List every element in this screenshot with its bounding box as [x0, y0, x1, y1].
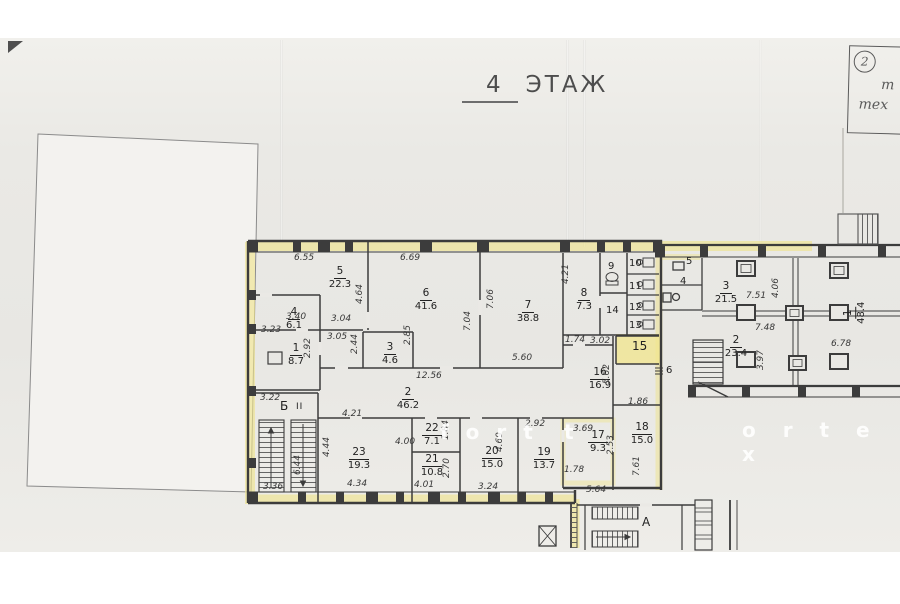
stamp-line2: тех [858, 96, 888, 113]
room-label-7: 738.8 [510, 294, 546, 324]
dim-label: 2.85 [403, 325, 413, 345]
dim-label: 4.34 [347, 479, 367, 489]
dim-label: 3.04 [331, 314, 351, 324]
dim-label: 4.44 [322, 437, 332, 457]
stamp-line1: т [881, 77, 895, 93]
dim-label: 1.78 [564, 465, 584, 475]
dim-label: 1.74 [565, 335, 585, 345]
room-label-9: 9 [608, 261, 614, 272]
stair-label-b: Б [280, 399, 288, 413]
scanned-floor-plan: 4ЭТАЖ 2 т тех 522.3 641.6 738.8 46.1 18.… [0, 0, 900, 604]
room-label-11: 11 [629, 281, 642, 292]
room-label-16: 1616.9 [582, 361, 618, 391]
dim-label: 5.60 [512, 353, 532, 363]
dim-label: 4.01 [414, 480, 434, 490]
dim-label: 7.06 [486, 289, 496, 309]
room-label-13: 13 [629, 320, 642, 331]
corner-stamp: 2 т тех [847, 45, 900, 135]
dim-label: 6.55 [294, 253, 314, 263]
wing-room-label-4: 4 [680, 276, 686, 287]
wing-room-label-3: 321.5 [708, 275, 744, 305]
plan-drawing [0, 0, 900, 604]
room-label-10: 10 [629, 258, 642, 269]
room-label-12: 12 [629, 302, 642, 313]
stamp-number: 2 [853, 50, 876, 73]
dim-label: 1.86 [628, 397, 648, 407]
dim-label: 3.22 [260, 393, 280, 403]
dim-label: 2.70 [442, 458, 452, 478]
room-label-18: 1815.0 [624, 416, 660, 446]
dim-label: 2.92 [303, 338, 313, 358]
room-label-6: 641.6 [408, 282, 444, 312]
dim-label: 7.61 [632, 456, 642, 476]
floor-number: 4 [462, 72, 518, 103]
dim-label: 3.69 [573, 424, 593, 434]
floor-word: ЭТАЖ [526, 72, 609, 98]
watermark-text: f o r t [440, 420, 538, 444]
wing-room-label-2: 223.4 [718, 329, 754, 359]
room-label-8: 87.3 [566, 282, 602, 312]
dim-label: 4.00 [395, 437, 415, 447]
dim-label: 6.69 [400, 253, 420, 263]
room-label-5: 522.3 [322, 260, 358, 290]
dim-label: 7.48 [755, 323, 775, 333]
photo-corner-mark [8, 41, 23, 53]
dim-label: 3.97 [756, 350, 766, 370]
dim-label: 7.51 [746, 291, 766, 301]
watermark-text: o r t e x [742, 418, 900, 466]
dim-label: 3.02 [590, 336, 610, 346]
wing-room-label-5: 5 [686, 256, 692, 267]
room-label-15: 15 [632, 339, 647, 353]
room-label-23: 2319.3 [341, 441, 377, 471]
dim-label: 3.05 [327, 332, 347, 342]
roof-structure [838, 214, 878, 244]
dim-label: 4.64 [355, 284, 365, 304]
stair-label-a: А [642, 515, 650, 529]
dim-label: 3.40 [286, 312, 306, 322]
dim-label: 4.21 [342, 409, 362, 419]
dim-label: 4.06 [771, 278, 781, 298]
dim-label: 6.78 [831, 339, 851, 349]
lower-section-walls [539, 500, 737, 550]
dim-label: 3.23 [261, 325, 281, 335]
dim-label: 3.24 [478, 482, 498, 492]
dim-label: 6.44 [293, 455, 303, 475]
room-label-19: 1913.7 [526, 441, 562, 471]
room-label-2: 246.2 [390, 381, 426, 411]
wing-room-label-1: 148.4 [837, 295, 867, 331]
dim-label: 12.56 [416, 371, 442, 381]
dim-label: 2.53 [606, 435, 616, 455]
dim-label: 3.36 [263, 482, 283, 492]
dim-label: 7.04 [463, 311, 473, 331]
left-parcel-outline [27, 134, 258, 492]
watermark-text: t [564, 420, 574, 444]
dim-label: 5.64 [586, 485, 606, 495]
dim-label: 4.21 [561, 264, 571, 284]
page-title: 4ЭТАЖ [462, 72, 608, 98]
dim-label: 5.62 [602, 364, 612, 384]
room-label-14: 14 [606, 305, 619, 316]
stair-mark: II [296, 402, 303, 412]
dim-label: 2.44 [350, 334, 360, 354]
wing-room-label-6: 6 [666, 365, 672, 376]
